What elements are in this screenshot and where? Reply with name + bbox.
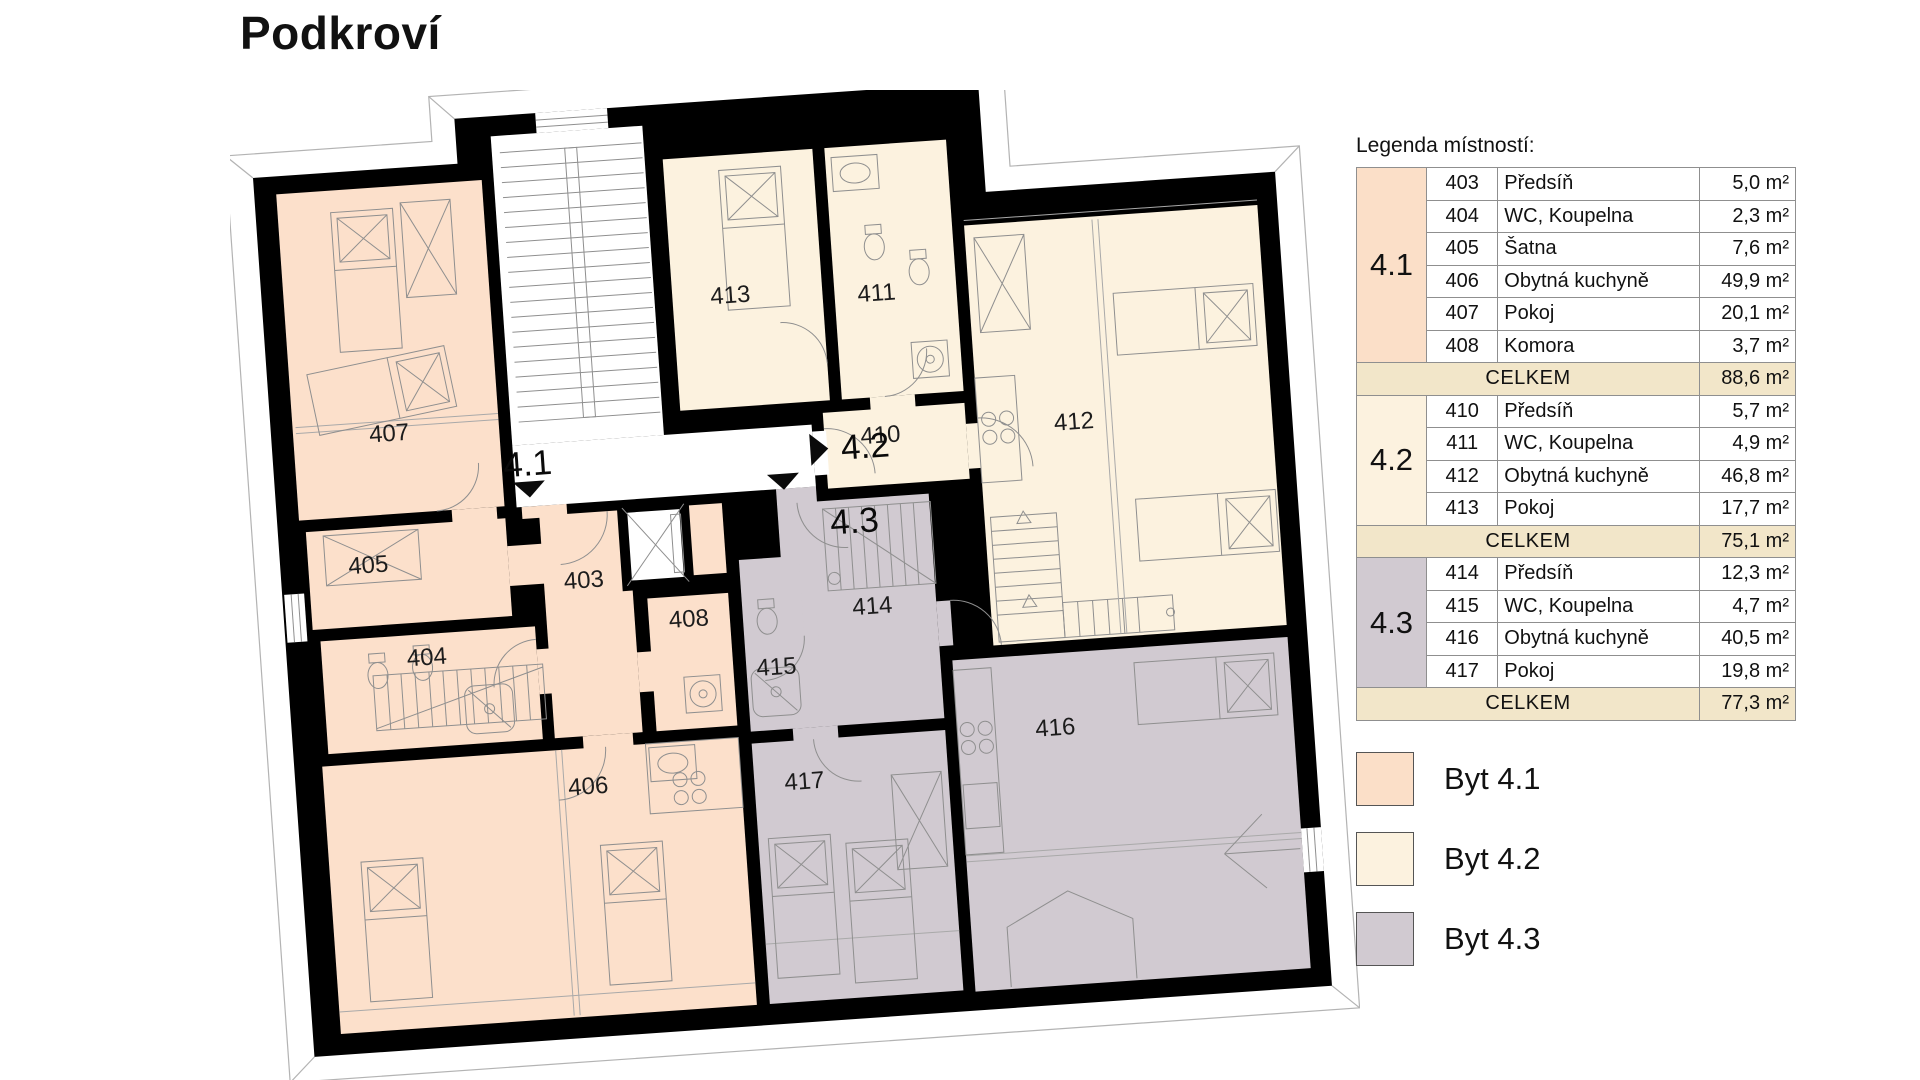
room-label-412: 412 (1053, 407, 1095, 437)
apartment-label-43: 4.3 (829, 500, 880, 542)
room-name: Pokoj (1498, 298, 1700, 331)
room-name: Pokoj (1498, 493, 1700, 526)
room-number: 413 (1427, 493, 1498, 526)
room-area: 2,3 m² (1700, 200, 1796, 233)
room-area: 4,7 m² (1700, 590, 1796, 623)
room-name: Šatna (1498, 233, 1700, 266)
floor-plan: 407 405 404 403 408 406 413 411 410 412 … (230, 90, 1360, 1080)
color-swatch-43 (1356, 912, 1414, 966)
key-label: Byt 4.2 (1444, 841, 1541, 877)
room-area: 5,0 m² (1700, 168, 1796, 201)
room-name: WC, Koupelna (1498, 200, 1700, 233)
table-row: 4.2 410 Předsíň 5,7 m² (1357, 395, 1796, 428)
room-number: 405 (1427, 233, 1498, 266)
room-name: Pokoj (1498, 655, 1700, 688)
room-area: 19,8 m² (1700, 655, 1796, 688)
room-area: 3,7 m² (1700, 330, 1796, 363)
key-item-42: Byt 4.2 (1356, 832, 1541, 886)
room-number: 416 (1427, 623, 1498, 656)
room-label-407: 407 (368, 419, 410, 449)
apartment-label-42: 4.2 (840, 425, 891, 467)
room-name: WC, Koupelna (1498, 590, 1700, 623)
total-area-41: 88,6 m² (1700, 363, 1796, 396)
total-label: CELKEM (1357, 688, 1700, 721)
room-label-411: 411 (857, 278, 897, 308)
key-item-41: Byt 4.1 (1356, 752, 1541, 806)
entry-door-416 (1301, 827, 1324, 872)
room-number: 415 (1427, 590, 1498, 623)
room-number: 410 (1427, 395, 1498, 428)
room-label-404: 404 (406, 643, 448, 673)
room-number: 407 (1427, 298, 1498, 331)
room-label-416: 416 (1034, 713, 1076, 743)
total-area-42: 75,1 m² (1700, 525, 1796, 558)
room-411-area (824, 140, 963, 400)
apartment-label-41: 4.1 (502, 443, 553, 485)
room-412-area (964, 205, 1287, 645)
room-area: 40,5 m² (1700, 623, 1796, 656)
color-swatch-42 (1356, 832, 1414, 886)
room-label-417: 417 (784, 767, 826, 797)
room-number: 414 (1427, 558, 1498, 591)
room-area: 12,3 m² (1700, 558, 1796, 591)
apartment-cell-43: 4.3 (1357, 558, 1427, 688)
room-name: Obytná kuchyně (1498, 265, 1700, 298)
room-label-403: 403 (563, 566, 605, 596)
room-413-area (663, 149, 830, 411)
room-name: Obytná kuchyně (1498, 460, 1700, 493)
total-row: CELKEM 77,3 m² (1357, 688, 1796, 721)
apartment-cell-42: 4.2 (1357, 395, 1427, 525)
table-row: 4.1 403 Předsíň 5,0 m² (1357, 168, 1796, 201)
total-label: CELKEM (1357, 525, 1700, 558)
room-area: 49,9 m² (1700, 265, 1796, 298)
room-number: 403 (1427, 168, 1498, 201)
room-label-413: 413 (709, 281, 751, 311)
staircase-area (491, 126, 664, 446)
room-number: 404 (1427, 200, 1498, 233)
total-row: CELKEM 88,6 m² (1357, 363, 1796, 396)
room-label-414: 414 (851, 591, 893, 621)
legend-table: 4.1 403 Předsíň 5,0 m² 404 WC, Koupelna … (1356, 167, 1796, 721)
room-area: 5,7 m² (1700, 395, 1796, 428)
room-number: 412 (1427, 460, 1498, 493)
key-label: Byt 4.1 (1444, 761, 1541, 797)
apartment-key: Byt 4.1 Byt 4.2 Byt 4.3 (1356, 752, 1541, 992)
key-label: Byt 4.3 (1444, 921, 1541, 957)
room-label-406: 406 (567, 772, 609, 802)
room-name: Předsíň (1498, 558, 1700, 591)
room-name: Předsíň (1498, 168, 1700, 201)
room-name: Komora (1498, 330, 1700, 363)
total-area-43: 77,3 m² (1700, 688, 1796, 721)
room-area: 4,9 m² (1700, 428, 1796, 461)
floor-plan-svg: 407 405 404 403 408 406 413 411 410 412 … (230, 90, 1360, 1080)
room-number: 411 (1427, 428, 1498, 461)
room-legend: Legenda místností: 4.1 403 Předsíň 5,0 m… (1356, 134, 1796, 721)
room-area: 17,7 m² (1700, 493, 1796, 526)
room-number: 408 (1427, 330, 1498, 363)
room-number: 417 (1427, 655, 1498, 688)
room-number: 406 (1427, 265, 1498, 298)
room-label-408: 408 (668, 604, 710, 634)
room-415-area (739, 556, 811, 732)
room-416-area (952, 637, 1310, 992)
room-label-415: 415 (755, 652, 797, 682)
table-row: 4.3 414 Předsíň 12,3 m² (1357, 558, 1796, 591)
total-row: CELKEM 75,1 m² (1357, 525, 1796, 558)
room-area: 7,6 m² (1700, 233, 1796, 266)
color-swatch-41 (1356, 752, 1414, 806)
room-name: WC, Koupelna (1498, 428, 1700, 461)
room-area: 46,8 m² (1700, 460, 1796, 493)
room-407-area (276, 180, 504, 521)
page-title: Podkroví (240, 6, 441, 60)
key-item-43: Byt 4.3 (1356, 912, 1541, 966)
room-name: Předsíň (1498, 395, 1700, 428)
room-name: Obytná kuchyně (1498, 623, 1700, 656)
room-area: 20,1 m² (1700, 298, 1796, 331)
room-label-405: 405 (347, 551, 389, 581)
legend-title: Legenda místností: (1356, 134, 1796, 158)
page: Podkroví (0, 0, 1920, 1080)
total-label: CELKEM (1357, 363, 1700, 396)
apartment-cell-41: 4.1 (1357, 168, 1427, 363)
